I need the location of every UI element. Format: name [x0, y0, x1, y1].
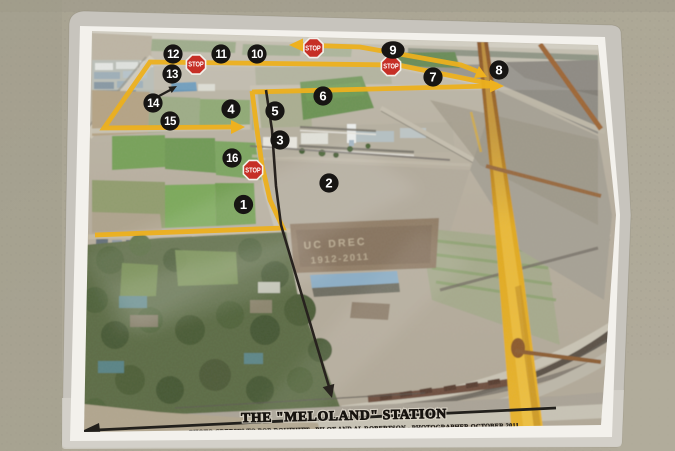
svg-text:6: 6 [319, 88, 326, 103]
svg-text:STOP: STOP [383, 61, 399, 70]
svg-text:8: 8 [495, 62, 502, 77]
svg-text:2: 2 [325, 175, 332, 190]
svg-text:11: 11 [215, 49, 227, 61]
svg-text:13: 13 [166, 69, 178, 81]
svg-text:16: 16 [226, 153, 238, 165]
svg-text:12: 12 [167, 49, 179, 61]
svg-text:7: 7 [429, 69, 436, 84]
svg-text:STOP: STOP [188, 59, 204, 68]
svg-text:9: 9 [389, 42, 396, 57]
svg-text:15: 15 [164, 116, 177, 128]
svg-text:STOP: STOP [305, 43, 321, 52]
svg-text:3: 3 [276, 132, 283, 147]
svg-text:4: 4 [227, 101, 235, 116]
svg-text:1: 1 [240, 197, 247, 212]
svg-text:STOP: STOP [245, 165, 261, 174]
svg-text:14: 14 [147, 98, 160, 110]
svg-text:10: 10 [251, 49, 263, 61]
svg-text:5: 5 [271, 103, 278, 118]
